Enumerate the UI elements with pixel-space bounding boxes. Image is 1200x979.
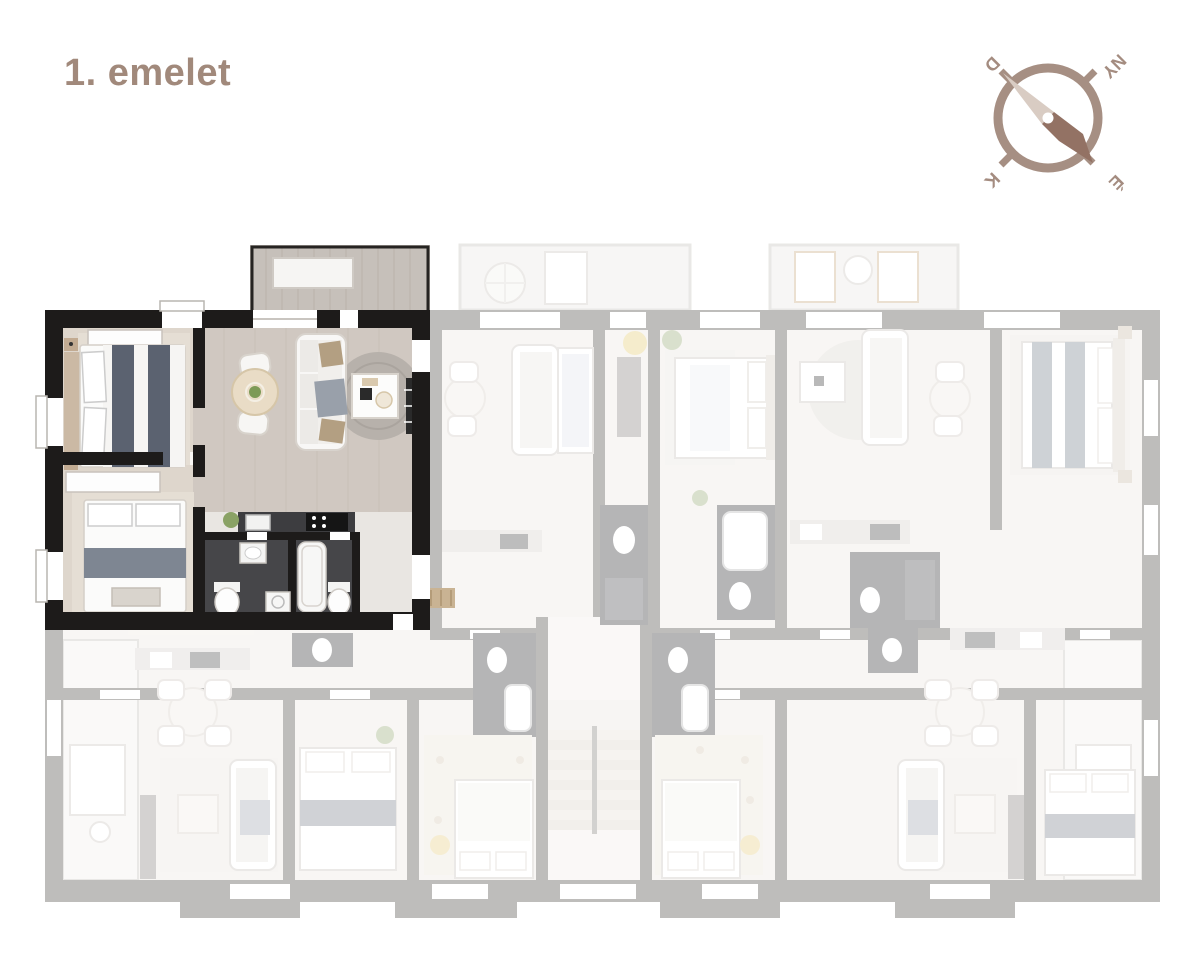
entry-door (412, 555, 430, 599)
highlighted-apartment[interactable] (36, 245, 430, 630)
faded-balcony-top-middle (460, 245, 690, 310)
faded-apartment-b2 (300, 726, 396, 870)
kitchen-plant (223, 512, 239, 528)
kitchen-sink (246, 515, 270, 530)
toilet-left (215, 588, 239, 616)
entry-doormat (427, 588, 455, 608)
window-sill-top (160, 301, 204, 311)
coffee-table (352, 374, 398, 418)
sofa (296, 334, 348, 450)
window-sill-left-1 (36, 396, 47, 448)
kitchen-stove (306, 513, 348, 531)
faded-apartment-b3 (424, 735, 533, 878)
window-sill-left-2 (36, 550, 47, 602)
faded-balcony-top-right (770, 245, 958, 310)
faded-loggia-left (63, 640, 138, 880)
floor-plan (0, 0, 1200, 979)
faded-apartment-b6 (1045, 770, 1135, 875)
bedroom-2 (66, 472, 194, 614)
bedroom2-bed (84, 500, 186, 612)
bedroom1-headboard (64, 352, 80, 456)
washer (266, 592, 290, 612)
kitchen (223, 512, 355, 532)
bedroom1-bed (80, 345, 185, 467)
bedroom2-wardrobe (66, 472, 160, 492)
bedroom-1 (64, 330, 190, 470)
balcony-bench (273, 258, 353, 288)
faded-stairs (548, 617, 640, 880)
toilet-right (328, 589, 350, 615)
faded-apartment-b4 (655, 735, 763, 878)
